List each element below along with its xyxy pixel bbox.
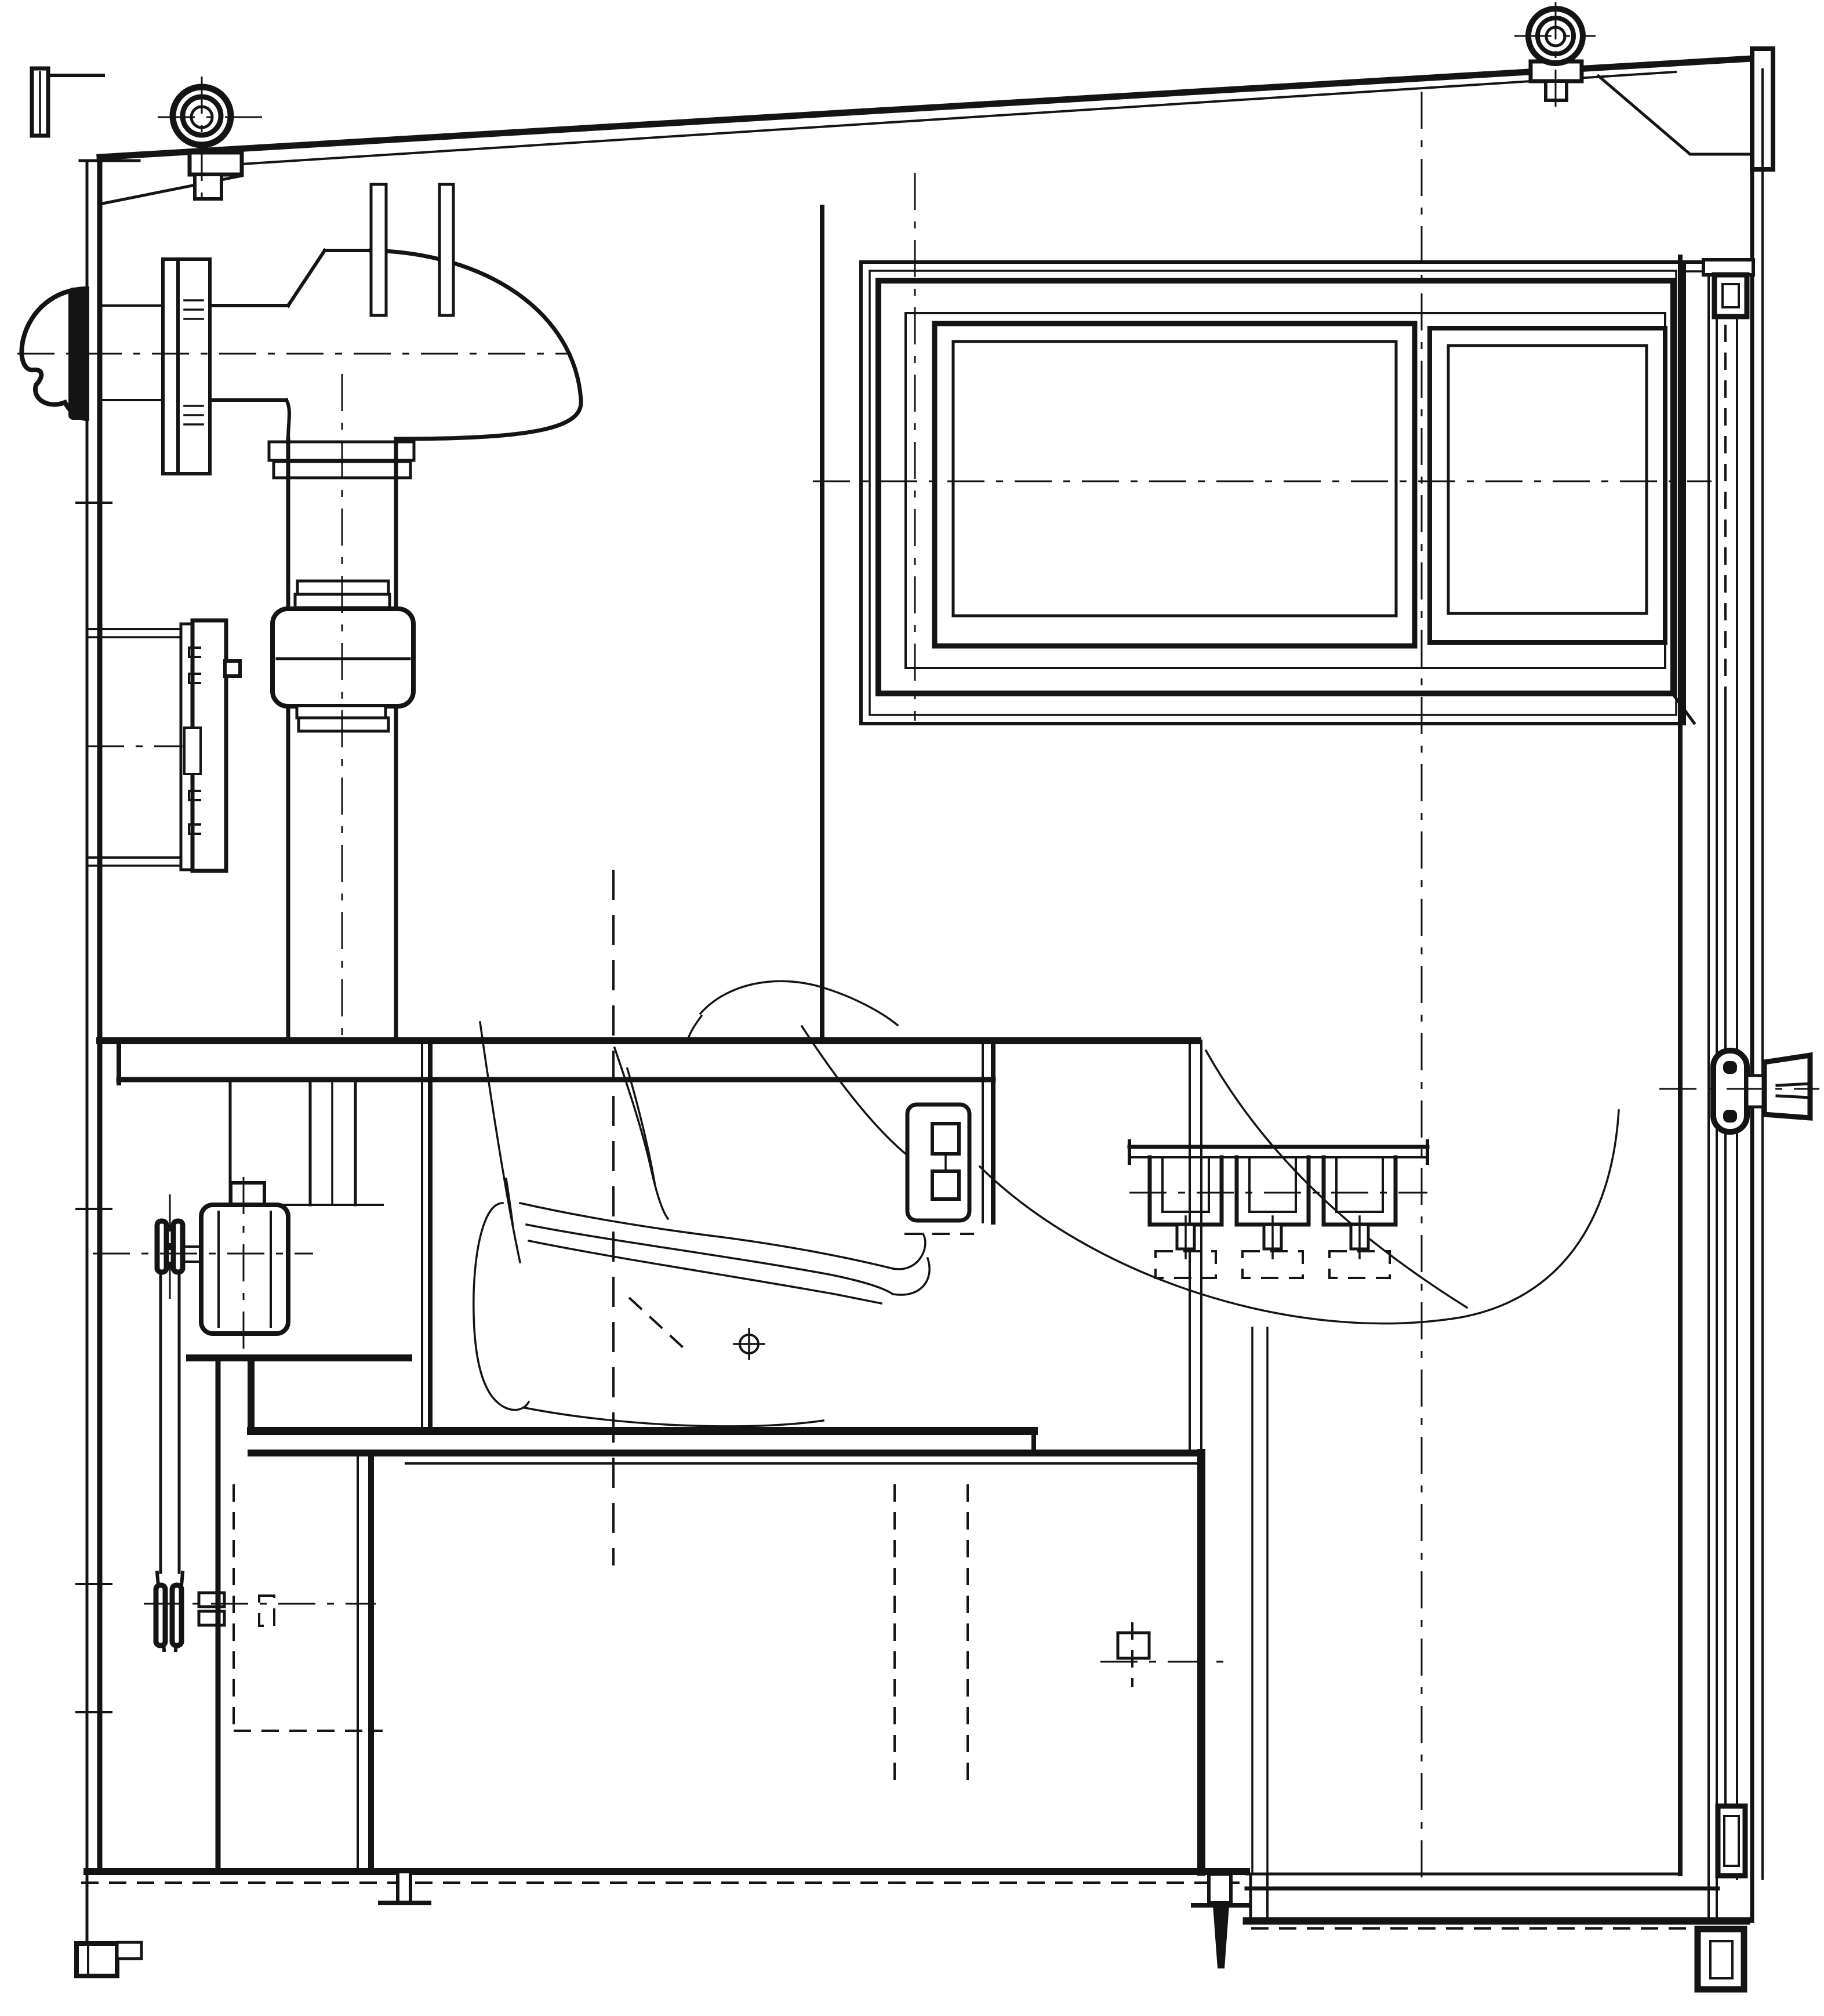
roof — [100, 59, 1752, 166]
operator-seat-sketch-stroke — [893, 1258, 929, 1295]
operator-seat-sketch-stroke — [525, 1408, 823, 1426]
mounting-feet-stroke — [1209, 1874, 1231, 1903]
window-pane-left — [935, 324, 1415, 646]
operator-seat-sketch-stroke — [893, 1234, 925, 1269]
drive-motor-stroke — [201, 1205, 288, 1334]
roof-stroke — [100, 59, 1752, 157]
sliding-window — [861, 262, 1752, 724]
chain-drive-stroke — [156, 1585, 165, 1646]
hanger-rail — [1129, 1141, 1427, 1278]
flexible-coupling-stroke — [299, 718, 388, 731]
door-edge — [1680, 63, 1763, 1921]
right-eave-bracket-stroke — [1598, 76, 1754, 154]
operator-seat-sketch-stroke — [480, 1022, 520, 1262]
door-knob-stroke — [1764, 1055, 1810, 1118]
tank-fitting — [1100, 1622, 1225, 1687]
mounting-feet-stroke — [398, 1872, 410, 1903]
louver-panel-stroke — [225, 661, 240, 676]
hanger-3-stroke — [1324, 1157, 1396, 1225]
base-frame — [1247, 1328, 1746, 1928]
operator-seat-sketch — [474, 981, 1619, 1426]
chain-drive-stroke — [259, 1596, 274, 1626]
door-latch-stroke — [1714, 275, 1747, 317]
operator-seat-sketch-stroke — [627, 1069, 655, 1186]
operator-seat-sketch-stroke — [629, 1298, 690, 1354]
operator-seat-sketch-stroke — [474, 1203, 529, 1410]
drive-motor — [181, 1183, 288, 1334]
duct-elbow — [269, 184, 581, 478]
hanger-1-stroke — [1150, 1157, 1222, 1225]
operator-seat-sketch-stroke — [802, 1026, 909, 1157]
tank — [81, 870, 1247, 1883]
control-box-stroke — [932, 1171, 959, 1199]
lifting-eye-left-stroke — [190, 152, 242, 175]
intake-duct-horizontal-stroke — [288, 250, 325, 306]
hanger-1 — [1150, 1157, 1222, 1278]
door-knob-stroke — [1723, 1110, 1737, 1123]
roof-stroke — [215, 72, 1676, 166]
door-knob-stroke — [1777, 1084, 1810, 1085]
hanger-2-stroke — [1237, 1157, 1309, 1225]
hanger-3-stroke — [1336, 1157, 1383, 1212]
chain-drive-stroke — [173, 1221, 183, 1272]
drawing-sheet — [0, 0, 1824, 2016]
duct-elbow-stroke — [286, 400, 289, 439]
mounting-feet-stroke — [77, 1944, 117, 1976]
intake-wall-flange-stroke — [163, 259, 178, 474]
louver-panel-stroke — [184, 728, 201, 774]
intake-wall-flange — [163, 259, 210, 474]
operator-seat-sketch-stroke — [688, 1016, 702, 1041]
hanger-3 — [1324, 1157, 1396, 1278]
door-knob — [1659, 1051, 1819, 1132]
mounting-feet-stroke — [1710, 1941, 1732, 1978]
chain-drive-stroke — [157, 1221, 166, 1272]
control-box — [904, 1105, 974, 1234]
mounting-feet-stroke — [1213, 1905, 1229, 1968]
door-knob-stroke — [1777, 1096, 1810, 1098]
chain-drive-stroke — [172, 1585, 181, 1646]
lifting-eye-left-stroke — [195, 175, 221, 199]
duct-elbow-stroke — [371, 184, 386, 315]
operator-seat-sketch-stroke — [980, 1110, 1619, 1324]
door-latch — [1703, 260, 1753, 317]
operator-seat-sketch-stroke — [529, 1241, 881, 1303]
left-wall — [77, 161, 111, 1944]
mounting-feet-stroke — [117, 1942, 141, 1959]
duct-elbow-stroke — [371, 250, 581, 439]
operator-seat-sketch-stroke — [520, 1203, 893, 1269]
door-edge-stroke — [1724, 1816, 1739, 1866]
technical-drawing — [0, 0, 1824, 2016]
operator-seat-sketch-stroke — [615, 1048, 668, 1219]
intake-duct-horizontal — [101, 250, 371, 400]
operator-seat-sketch-stroke — [700, 981, 898, 1025]
window-pane-right — [1430, 328, 1665, 642]
door-knob-stroke — [1723, 1061, 1737, 1074]
control-box-stroke — [932, 1124, 959, 1154]
duct-elbow-stroke — [439, 184, 453, 315]
intake-wall-flange-stroke — [178, 259, 210, 474]
hanger-2 — [1237, 1157, 1309, 1278]
lifting-eye-right — [1514, 2, 1596, 109]
